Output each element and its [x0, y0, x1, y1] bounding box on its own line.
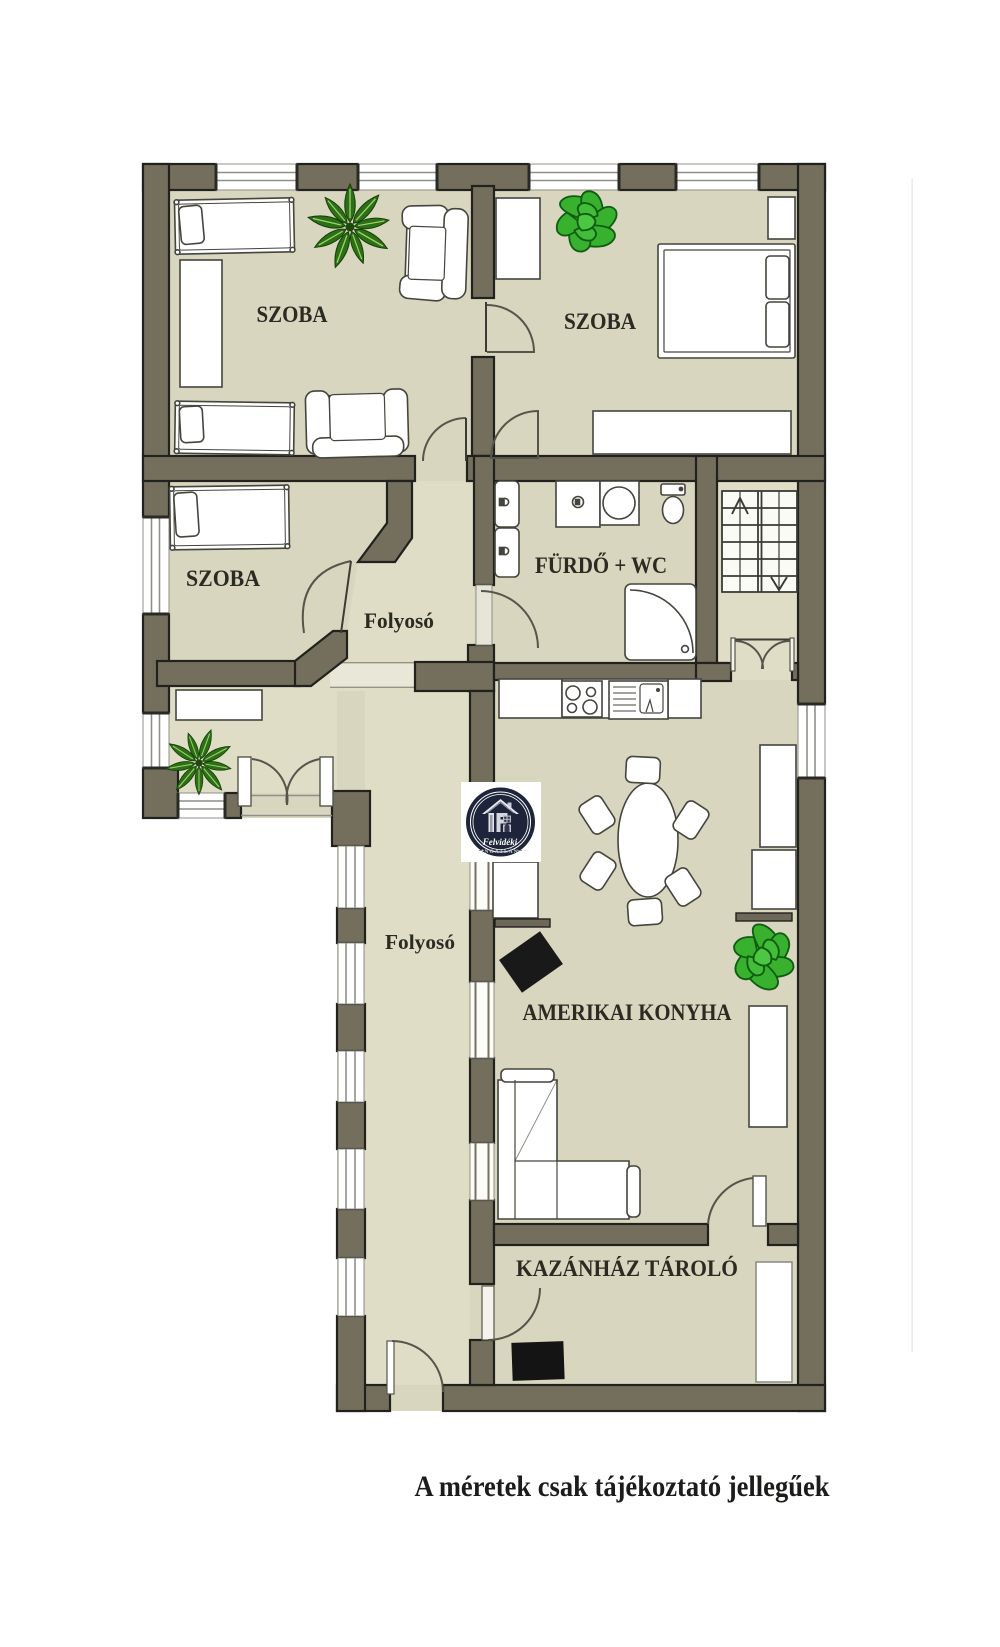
svg-text:Felvidéki: Felvidéki: [482, 837, 518, 847]
svg-text:Folyosó: Folyosó: [364, 608, 434, 633]
svg-text:INGATLÁN: INGATLÁN: [481, 847, 518, 855]
svg-text:SZOBA: SZOBA: [257, 302, 328, 328]
svg-text:AMERIKAI KONYHA: AMERIKAI KONYHA: [523, 1000, 732, 1025]
svg-text:A méretek csak tájékoztató jel: A méretek csak tájékoztató jellegűek: [415, 1470, 830, 1503]
svg-text:KAZÁNHÁZ TÁROLÓ: KAZÁNHÁZ TÁROLÓ: [516, 1255, 738, 1281]
svg-text:SZOBA: SZOBA: [186, 566, 260, 592]
svg-text:Folyosó: Folyosó: [385, 930, 455, 954]
svg-text:FÜRDŐ + WC: FÜRDŐ + WC: [535, 552, 667, 579]
svg-text:SZOBA: SZOBA: [564, 309, 636, 335]
